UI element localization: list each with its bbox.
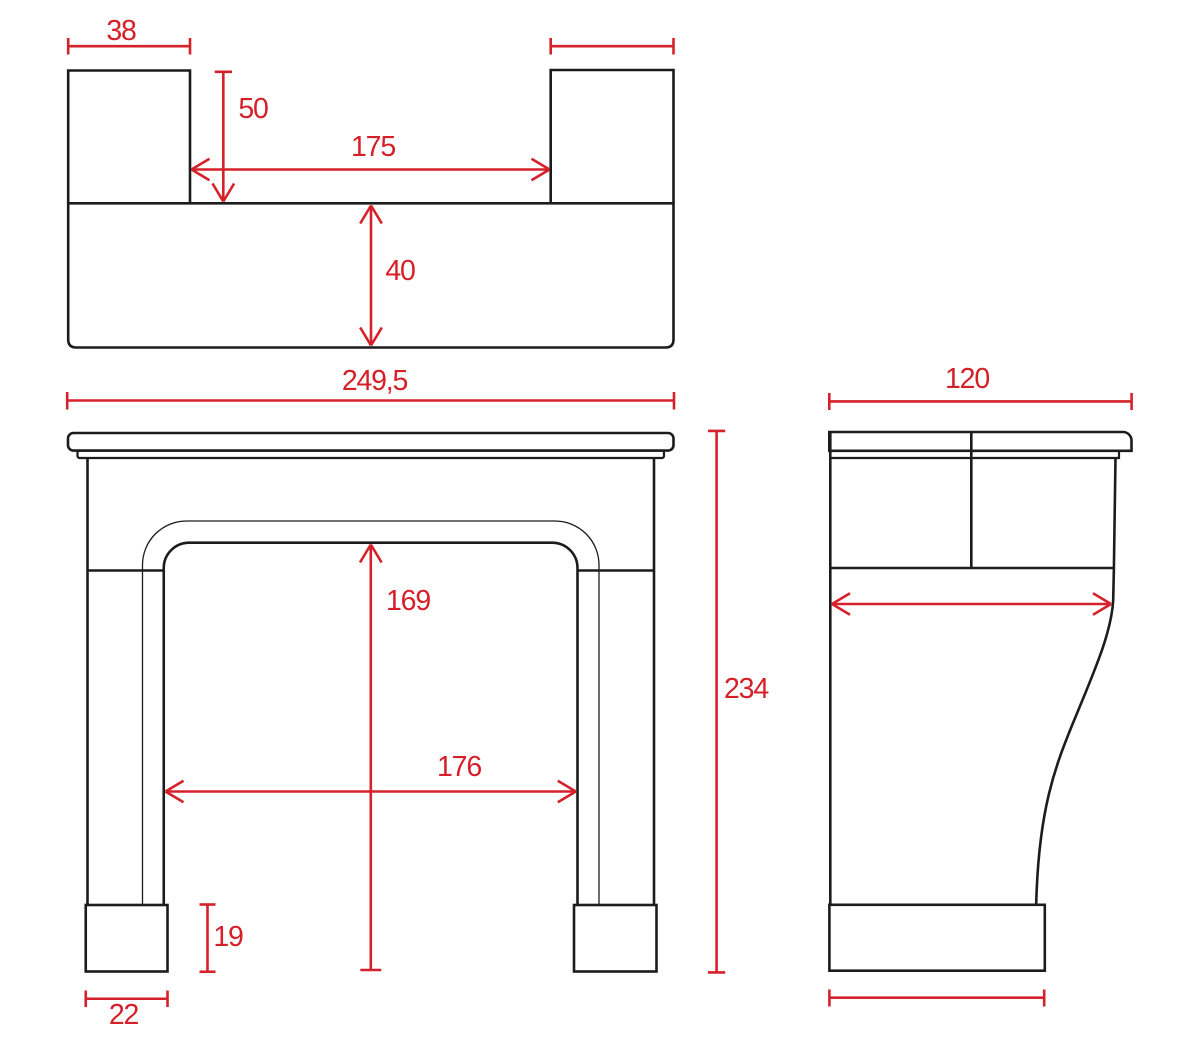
svg-text:176: 176 — [437, 751, 481, 783]
svg-text:40: 40 — [385, 255, 415, 287]
svg-text:169: 169 — [386, 585, 430, 617]
svg-text:234: 234 — [724, 673, 769, 705]
svg-text:22: 22 — [109, 999, 139, 1031]
svg-text:50: 50 — [238, 93, 268, 125]
svg-text:249,5: 249,5 — [342, 365, 408, 397]
svg-text:120: 120 — [945, 363, 989, 395]
svg-text:38: 38 — [106, 15, 136, 47]
svg-text:175: 175 — [351, 131, 395, 163]
svg-text:19: 19 — [213, 921, 243, 953]
